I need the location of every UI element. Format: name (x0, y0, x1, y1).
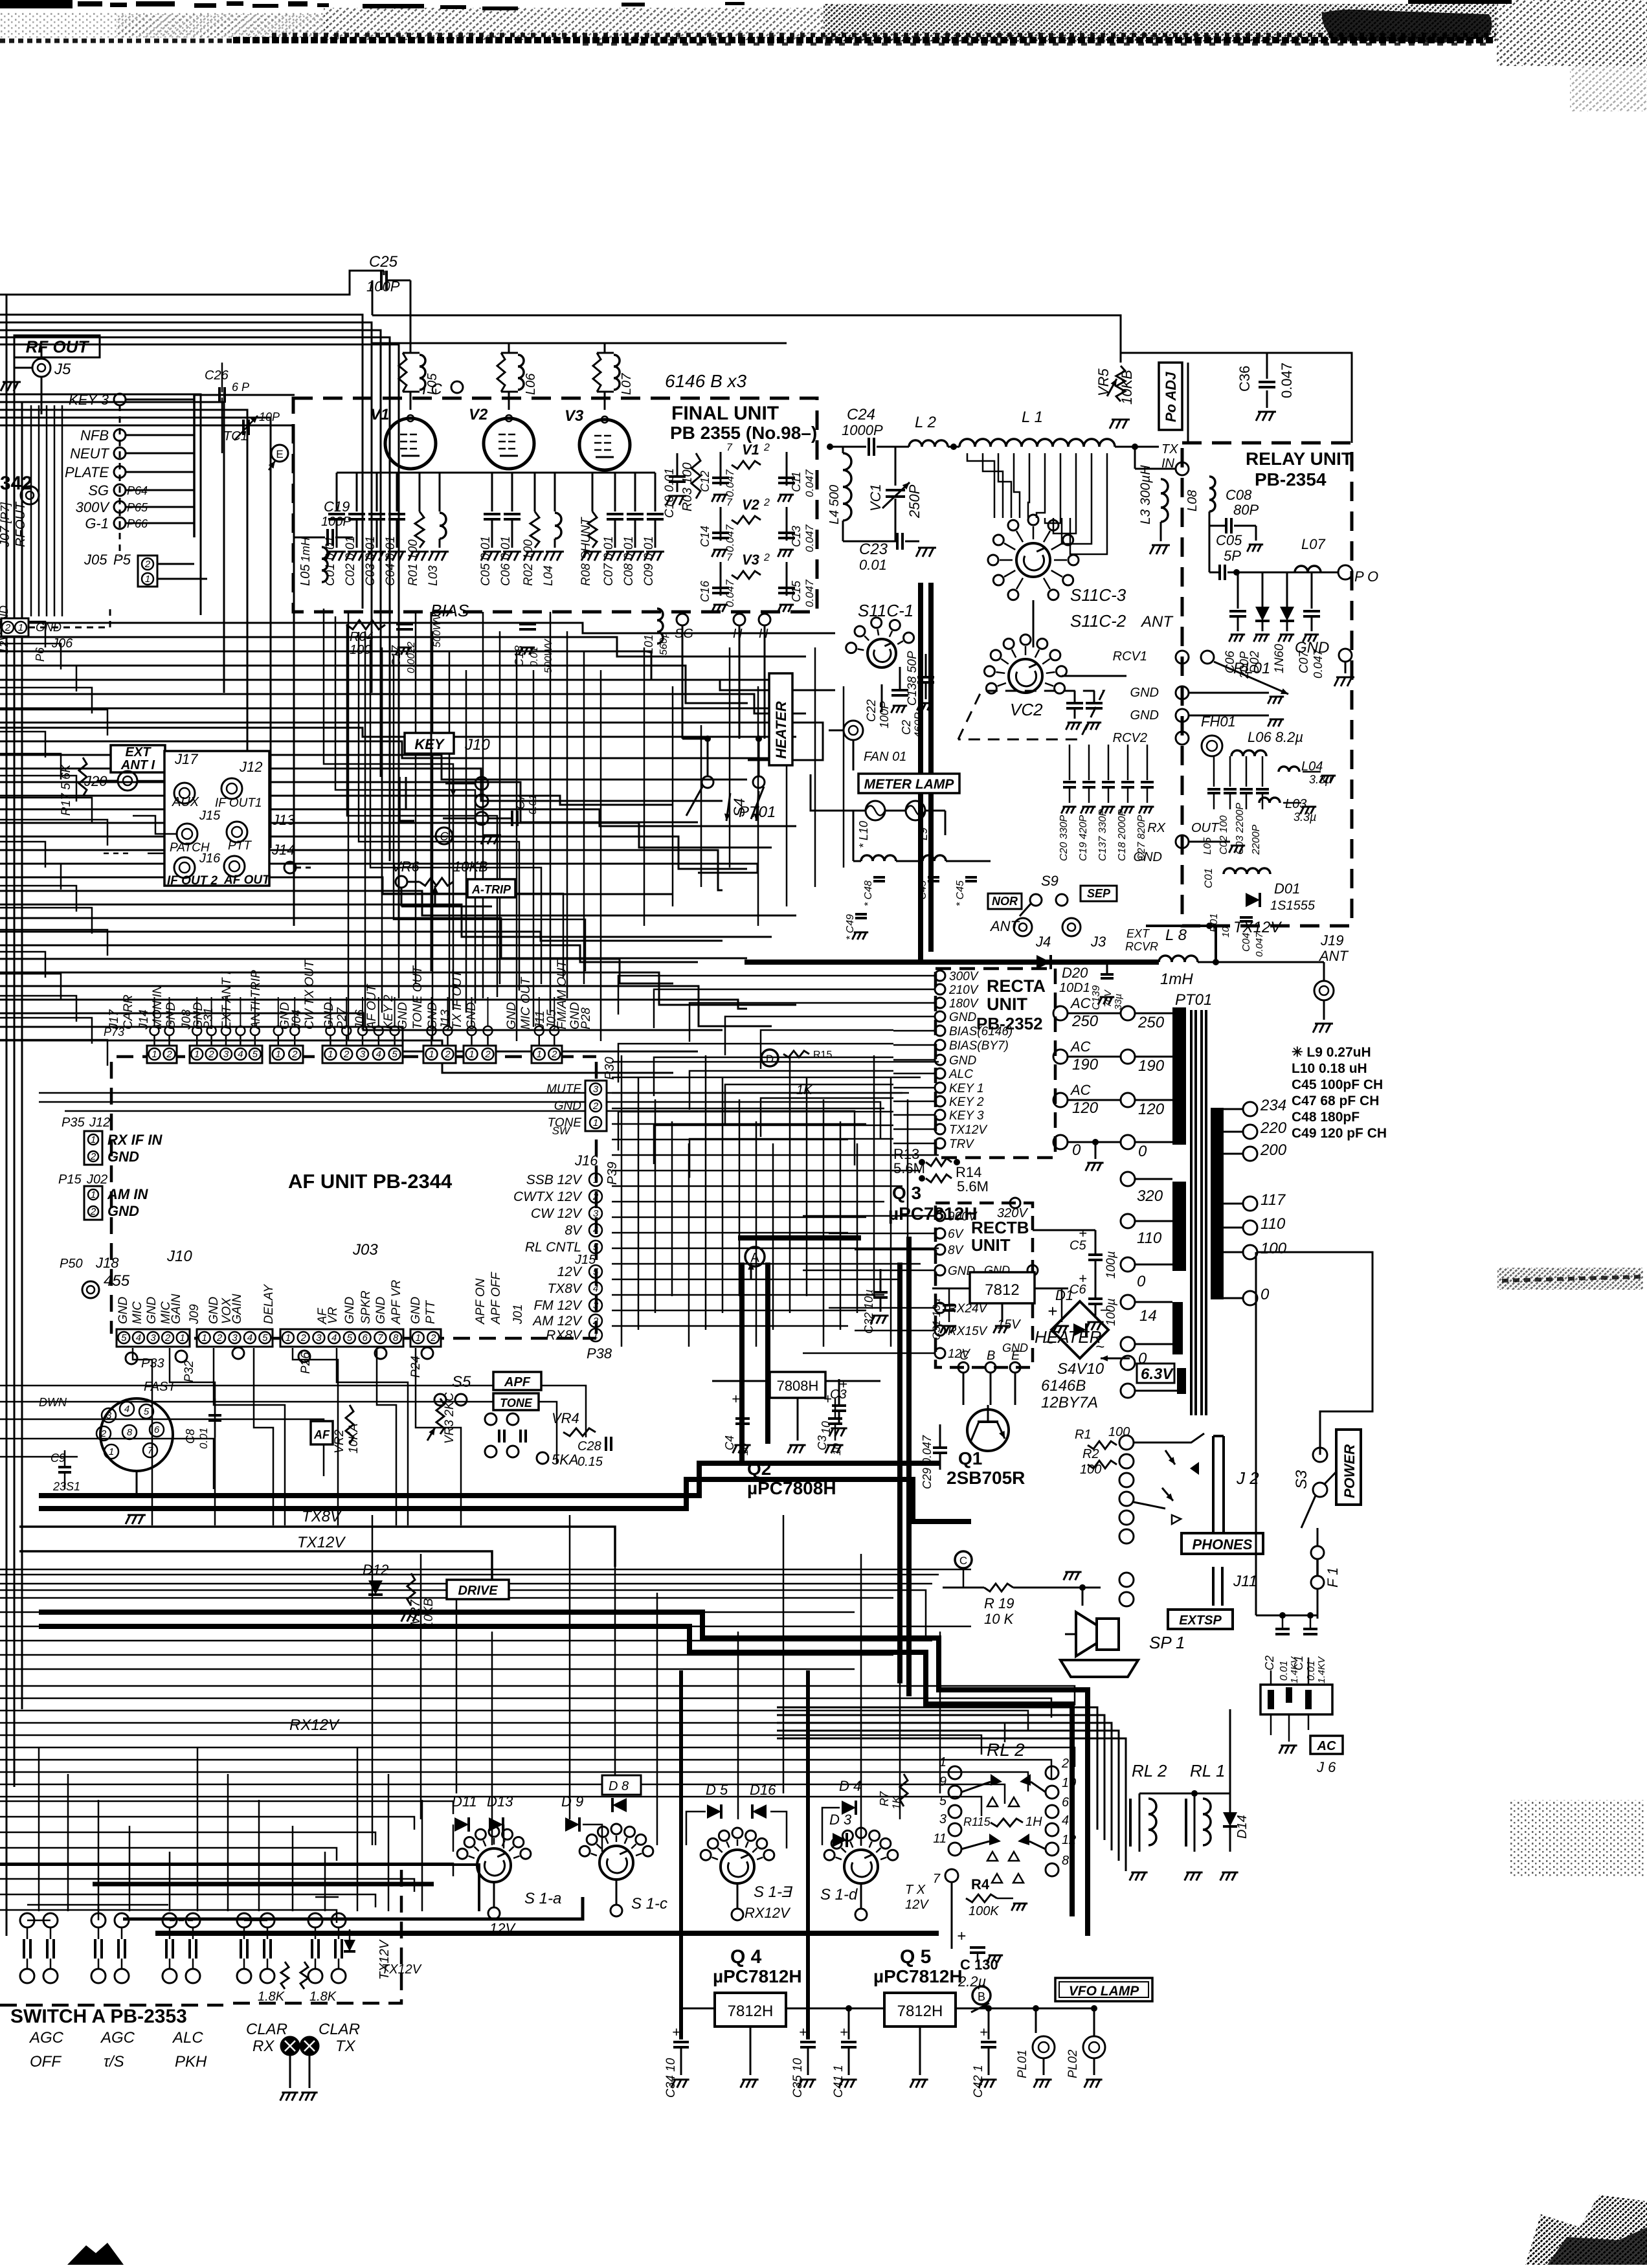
svg-text:8: 8 (1062, 1854, 1069, 1868)
svg-text:0.15: 0.15 (577, 1455, 603, 1469)
svg-text:R01 100: R01 100 (407, 539, 420, 586)
svg-text:6146 B x3: 6146 B x3 (665, 371, 747, 391)
svg-text:100: 100 (1080, 1463, 1101, 1477)
svg-text:0.047: 0.047 (724, 524, 736, 552)
svg-text:8V: 8V (565, 1223, 583, 1238)
svg-text:PB-2354: PB-2354 (1255, 469, 1327, 489)
svg-text:C31 10µ: C31 10µ (930, 1298, 943, 1340)
svg-text:GND: GND (145, 1297, 159, 1325)
svg-text:C02 100: C02 100 (1218, 815, 1229, 855)
svg-text:1: 1 (429, 1049, 434, 1060)
svg-text:J11: J11 (1233, 1573, 1257, 1590)
svg-text:6: 6 (1062, 1795, 1070, 1810)
svg-text:10KB: 10KB (453, 859, 488, 875)
svg-text:1: 1 (202, 1332, 207, 1343)
svg-text:VR5: VR5 (1095, 368, 1112, 396)
svg-text:SP 1: SP 1 (1149, 1633, 1185, 1652)
svg-text:AGC: AGC (100, 2029, 135, 2047)
svg-text:RL CNTL: RL CNTL (525, 1240, 581, 1255)
svg-text:5: 5 (593, 1242, 599, 1253)
svg-text:0.047: 0.047 (724, 579, 736, 607)
svg-text:IF OUT1: IF OUT1 (215, 796, 262, 810)
svg-text:J4: J4 (1035, 934, 1051, 950)
svg-text:P O: P O (1354, 568, 1378, 585)
svg-text:C25: C25 (369, 253, 398, 271)
svg-text:VC2: VC2 (1010, 700, 1043, 719)
svg-text:METER LAMP: METER LAMP (864, 777, 955, 792)
svg-text:4: 4 (593, 1283, 598, 1294)
svg-text:1: 1 (276, 1049, 281, 1060)
svg-text:C8: C8 (184, 1429, 197, 1444)
svg-text:S11C-1: S11C-1 (858, 601, 913, 620)
svg-text:5: 5 (939, 1794, 947, 1808)
svg-text:TX8V: TX8V (547, 1281, 583, 1296)
svg-text:7812H: 7812H (728, 2003, 774, 2020)
svg-text:8: 8 (393, 1332, 399, 1343)
svg-text:µPC7808H: µPC7808H (747, 1478, 836, 1498)
svg-text:J07: J07 (0, 526, 12, 548)
svg-text:C14: C14 (699, 526, 711, 547)
svg-text:5: 5 (262, 1332, 268, 1343)
svg-text:ALC: ALC (948, 1068, 973, 1081)
svg-text:5: 5 (347, 1332, 353, 1343)
svg-text:J12: J12 (239, 759, 262, 775)
svg-text:C48 180pF: C48 180pF (1292, 1110, 1360, 1125)
svg-text:ANT: ANT (1318, 948, 1349, 964)
svg-text:5: 5 (252, 1049, 258, 1060)
svg-text:D01: D01 (1274, 881, 1300, 897)
svg-text:SEP: SEP (1087, 887, 1111, 900)
svg-text:12BY7A: 12BY7A (1041, 1394, 1098, 1411)
svg-text:6V: 6V (948, 1228, 965, 1241)
svg-text:1: 1 (328, 1049, 333, 1060)
svg-text:P26: P26 (299, 1352, 313, 1374)
svg-text:V1: V1 (742, 442, 759, 458)
svg-text:6.3V: 6.3V (1141, 1365, 1174, 1383)
svg-text:V3: V3 (742, 552, 759, 568)
svg-text:2: 2 (216, 1332, 223, 1343)
svg-text:J04: J04 (290, 1009, 304, 1030)
svg-text:S5: S5 (452, 1373, 471, 1391)
svg-text:0.047: 0.047 (803, 579, 816, 607)
svg-text:J5: J5 (54, 361, 71, 378)
svg-text:Q 4: Q 4 (730, 1946, 762, 1968)
svg-text:0.01: 0.01 (859, 557, 887, 573)
svg-text:D 4: D 4 (839, 1778, 861, 1794)
svg-text:C3: C3 (816, 1435, 829, 1450)
svg-text:342: 342 (0, 473, 32, 494)
svg-text:L07: L07 (1301, 536, 1325, 552)
svg-text:0.0022: 0.0022 (406, 642, 417, 673)
svg-text:250P: 250P (906, 484, 923, 519)
svg-text:0.047: 0.047 (803, 469, 816, 497)
svg-text:P27: P27 (335, 1007, 349, 1029)
svg-text:300V: 300V (949, 970, 980, 983)
svg-text:CARR: CARR (122, 994, 135, 1029)
svg-text:AC: AC (1070, 1082, 1091, 1098)
svg-text:✳ L9 0.27uH: ✳ L9 0.27uH (1292, 1045, 1371, 1060)
svg-text:2: 2 (164, 1332, 171, 1343)
svg-text:* C48: * C48 (863, 881, 874, 906)
svg-text:S11C-3: S11C-3 (1070, 585, 1126, 605)
svg-text:C24: C24 (847, 406, 875, 423)
svg-text:C11: C11 (790, 471, 803, 492)
svg-text:7: 7 (148, 1445, 153, 1456)
svg-text:4: 4 (376, 1049, 381, 1060)
svg-text:RL 1: RL 1 (1190, 1761, 1225, 1780)
svg-text:OUT: OUT (1191, 821, 1220, 835)
svg-text:3: 3 (316, 1332, 322, 1343)
svg-text:VR4: VR4 (552, 1410, 579, 1426)
svg-text:C35 10: C35 10 (791, 2058, 805, 2098)
svg-text:RECTB: RECTB (971, 1218, 1029, 1237)
svg-text:L 8: L 8 (1165, 926, 1187, 944)
svg-text:Q1: Q1 (958, 1448, 982, 1468)
svg-text:C34 10: C34 10 (664, 2058, 678, 2098)
svg-text:GND: GND (465, 1002, 478, 1030)
svg-text:4: 4 (1062, 1813, 1069, 1828)
svg-text:D11: D11 (452, 1793, 477, 1810)
svg-text:1: 1 (194, 1049, 199, 1060)
svg-text:14: 14 (1139, 1307, 1157, 1325)
svg-text:E: E (276, 448, 283, 460)
svg-text:GND: GND (164, 1002, 178, 1030)
svg-text:5: 5 (121, 1332, 127, 1343)
svg-text:C49 120 pF CH: C49 120 pF CH (1292, 1126, 1387, 1141)
svg-text:C4: C4 (723, 1435, 736, 1450)
svg-text:BIAS(BY7): BIAS(BY7) (949, 1039, 1009, 1053)
svg-text:P66: P66 (127, 517, 148, 530)
svg-text:C20 330P: C20 330P (1059, 815, 1070, 861)
svg-text:2: 2 (551, 1049, 557, 1060)
svg-text:300V: 300V (76, 499, 111, 515)
svg-text:J02: J02 (86, 1173, 107, 1187)
svg-text:GND: GND (107, 1203, 139, 1219)
svg-text:GND: GND (1134, 850, 1162, 864)
svg-text:R2: R2 (1082, 1447, 1099, 1461)
svg-text:RCV2: RCV2 (1113, 731, 1147, 745)
svg-text:GND: GND (396, 1002, 410, 1030)
svg-text:TRV: TRV (949, 1138, 975, 1151)
svg-text:D: D (766, 1053, 774, 1065)
svg-text:C29 0.047: C29 0.047 (921, 1435, 934, 1489)
svg-text:5P: 5P (1224, 548, 1241, 564)
svg-text:1: 1 (286, 1332, 291, 1343)
svg-text:0: 0 (1072, 1141, 1081, 1159)
svg-text:GND: GND (409, 1297, 423, 1325)
svg-text:+: + (1048, 1301, 1057, 1321)
svg-text:7808H: 7808H (777, 1378, 819, 1394)
svg-text:D20: D20 (1062, 965, 1088, 981)
svg-text:AC: AC (1070, 995, 1091, 1011)
svg-text:J10: J10 (464, 736, 490, 754)
svg-text:C09 0.01: C09 0.01 (642, 536, 656, 586)
svg-text:1: 1 (593, 1330, 598, 1341)
svg-text:+: + (840, 2024, 848, 2040)
svg-text:10 K: 10 K (984, 1611, 1014, 1627)
svg-text:C26: C26 (205, 368, 229, 383)
svg-text:POWER: POWER (1341, 1444, 1358, 1498)
svg-text:L3 300µH: L3 300µH (1138, 465, 1153, 524)
svg-text:2: 2 (592, 1191, 599, 1202)
svg-text:8V: 8V (948, 1244, 965, 1257)
svg-text:TX12V: TX12V (297, 1534, 346, 1551)
svg-text:Q 5: Q 5 (900, 1946, 931, 1968)
svg-text:+: + (839, 1376, 847, 1392)
svg-text:C03 0.01: C03 0.01 (364, 536, 377, 586)
svg-text:ANT I: ANT I (120, 758, 155, 772)
svg-text:4: 4 (136, 1332, 141, 1343)
svg-text:DRIVE: DRIVE (458, 1584, 498, 1598)
svg-text:L05: L05 (298, 564, 313, 586)
svg-text:2: 2 (430, 1332, 436, 1343)
svg-text:23S1: 23S1 (52, 1480, 80, 1493)
svg-text:RCVR: RCVR (1125, 940, 1158, 953)
svg-text:L4 500: L4 500 (827, 485, 842, 524)
svg-text:210V: 210V (948, 983, 980, 997)
svg-text:GND: GND (554, 1099, 582, 1113)
svg-text:R04: R04 (350, 630, 374, 644)
svg-text:1N60: 1N60 (1273, 644, 1286, 673)
svg-text:L 2: L 2 (915, 414, 936, 431)
svg-text:P73: P73 (104, 1026, 124, 1039)
svg-text:VC1: VC1 (868, 484, 884, 511)
svg-text:τ/S: τ/S (104, 2053, 124, 2071)
svg-text:S4V10: S4V10 (1057, 1360, 1104, 1378)
svg-text:1S1555: 1S1555 (1270, 899, 1316, 913)
svg-text:GAIN: GAIN (170, 1294, 183, 1324)
svg-text:CW 12V: CW 12V (531, 1206, 583, 1221)
svg-text:1: 1 (18, 622, 23, 633)
svg-text:3: 3 (593, 1208, 599, 1219)
svg-text:L 1: L 1 (1022, 409, 1043, 426)
svg-text:L08: L08 (1185, 490, 1200, 511)
svg-text:TX: TX (335, 2038, 356, 2055)
svg-text:2: 2 (484, 1049, 491, 1060)
svg-text:1: 1 (593, 1174, 598, 1185)
svg-text:J09: J09 (188, 1304, 201, 1325)
svg-text:KEY 2: KEY 2 (382, 994, 396, 1029)
svg-text:VR: VR (326, 1307, 340, 1324)
svg-text:R4: R4 (971, 1876, 990, 1892)
svg-text:2: 2 (343, 1049, 350, 1060)
svg-text:P64: P64 (127, 484, 148, 497)
svg-text:1: 1 (416, 1332, 421, 1343)
svg-text:T X: T X (905, 1883, 926, 1897)
svg-text:J10: J10 (166, 1248, 192, 1265)
svg-text:GND: GND (374, 1297, 388, 1325)
svg-text:GND: GND (343, 1297, 357, 1325)
svg-text:SWITCH A PB-2353: SWITCH A PB-2353 (10, 2006, 187, 2027)
svg-text:RF: RF (14, 529, 28, 547)
svg-text:APF ON: APF ON (474, 1278, 487, 1325)
svg-text:S3: S3 (1293, 1470, 1310, 1489)
svg-text:P28: P28 (579, 1007, 593, 1029)
svg-text:FAN 01: FAN 01 (864, 750, 906, 764)
svg-text:C08: C08 (1226, 487, 1252, 503)
svg-text:GND: GND (322, 1002, 336, 1030)
svg-text:7: 7 (377, 1332, 383, 1343)
svg-text:3: 3 (232, 1332, 238, 1343)
svg-text:L06: L06 (524, 373, 538, 395)
svg-text:J18: J18 (95, 1255, 119, 1271)
svg-text:RX12V: RX12V (289, 1716, 340, 1734)
svg-text:GND: GND (505, 1002, 519, 1030)
svg-text:120: 120 (1138, 1101, 1165, 1118)
svg-text:234: 234 (1260, 1097, 1286, 1114)
svg-text:B: B (987, 1349, 995, 1363)
svg-text:0.047: 0.047 (1279, 363, 1295, 398)
svg-text:* L10: * L10 (857, 821, 870, 848)
svg-text:P6: P6 (34, 647, 47, 662)
svg-text:460P: 460P (912, 712, 924, 738)
svg-text:C2: C2 (900, 720, 913, 735)
svg-text:FM 12V: FM 12V (533, 1298, 583, 1313)
svg-text:C: C (440, 830, 449, 843)
svg-text:P65: P65 (127, 501, 148, 514)
svg-text:TX: TX (1161, 442, 1178, 456)
svg-text:0.047: 0.047 (724, 469, 736, 497)
svg-text:110: 110 (1137, 1229, 1162, 1247)
svg-text:10KB: 10KB (1119, 370, 1135, 405)
svg-text:RL01: RL01 (1233, 660, 1270, 677)
svg-text:1mH: 1mH (1160, 971, 1193, 988)
svg-text:NFB: NFB (80, 427, 109, 443)
svg-text:P30: P30 (603, 1057, 617, 1080)
svg-text:4: 4 (238, 1049, 243, 1060)
svg-text:R7: R7 (878, 1791, 891, 1806)
svg-text:VR6: VR6 (392, 859, 420, 875)
svg-text:1: 1 (180, 1332, 185, 1343)
svg-text:S9: S9 (1041, 873, 1059, 889)
svg-text:DELAY: DELAY (262, 1284, 276, 1324)
svg-text:APF: APF (504, 1375, 531, 1389)
svg-text:P35: P35 (62, 1116, 85, 1130)
svg-text:D12: D12 (363, 1562, 388, 1578)
svg-text:RX: RX (1147, 821, 1165, 835)
svg-text:S11C-2: S11C-2 (1070, 611, 1126, 631)
svg-text:C16: C16 (699, 580, 711, 602)
svg-text:2: 2 (208, 1049, 214, 1060)
svg-text:2: 2 (444, 1049, 451, 1060)
svg-text:100P: 100P (878, 701, 891, 728)
svg-text:TONE OUT: TONE OUT (411, 965, 425, 1029)
svg-text:C45 100pF CH: C45 100pF CH (1292, 1077, 1383, 1092)
svg-text:OFF: OFF (30, 2053, 62, 2071)
svg-text:+: + (672, 2024, 680, 2040)
svg-text:2: 2 (166, 1049, 172, 1060)
svg-text:1: 1 (109, 1446, 114, 1457)
svg-text:11: 11 (933, 1832, 947, 1846)
svg-text:100µ: 100µ (1104, 1298, 1118, 1326)
svg-text:C08 0.01: C08 0.01 (622, 536, 636, 586)
svg-text:P50: P50 (60, 1257, 83, 1271)
svg-text:0: 0 (1137, 1273, 1146, 1290)
svg-text:100P: 100P (321, 515, 352, 529)
svg-text:5: 5 (593, 1266, 599, 1277)
svg-text:6: 6 (362, 1332, 368, 1343)
svg-text:RECTA: RECTA (987, 976, 1046, 996)
svg-text:1H: 1H (1025, 1815, 1042, 1829)
svg-text:2SB705R: 2SB705R (947, 1468, 1025, 1488)
svg-text:µPC7812H: µPC7812H (713, 1966, 802, 1986)
svg-text:1K: 1K (796, 1083, 813, 1097)
svg-text:R115: R115 (963, 1815, 991, 1828)
svg-text:7: 7 (726, 552, 733, 563)
svg-text:455: 455 (104, 1272, 130, 1290)
svg-text:H: H (733, 627, 743, 641)
svg-text:0.01: 0.01 (529, 647, 540, 667)
svg-text:1.8K: 1.8K (309, 1990, 337, 2004)
svg-text:560µ: 560µ (658, 632, 669, 655)
svg-text:C12: C12 (699, 471, 711, 492)
svg-text:250: 250 (1137, 1014, 1165, 1031)
svg-text:HEATER: HEATER (773, 701, 789, 759)
svg-text:1.4KV: 1.4KV (1316, 1656, 1327, 1683)
svg-text:4: 4 (331, 1332, 337, 1343)
svg-text:L05: L05 (1202, 837, 1213, 855)
svg-text:C05: C05 (1216, 532, 1242, 548)
svg-text:3: 3 (939, 1812, 947, 1826)
svg-text:0.01: 0.01 (1306, 1661, 1317, 1681)
svg-text:SPKR: SPKR (359, 1290, 373, 1324)
svg-text:0: 0 (1138, 1143, 1147, 1160)
svg-text:100: 100 (1108, 1425, 1130, 1439)
svg-text:L04: L04 (542, 565, 555, 586)
svg-text:R15: R15 (813, 1050, 832, 1061)
svg-text:2: 2 (5, 622, 11, 633)
svg-text:PLATE: PLATE (65, 464, 109, 480)
svg-text:+: + (732, 1391, 740, 1407)
svg-text:J12: J12 (89, 1116, 110, 1130)
svg-text:V2: V2 (469, 406, 488, 423)
svg-text:C138 50P: C138 50P (906, 651, 919, 706)
svg-text:V1: V1 (370, 406, 389, 423)
svg-text:PTT: PTT (424, 1300, 438, 1324)
svg-text:F 1: F 1 (1325, 1567, 1341, 1588)
svg-text:SW: SW (552, 1125, 571, 1137)
svg-text:FM/AM OUT: FM/AM OUT (555, 960, 569, 1029)
svg-text:GND: GND (117, 1297, 130, 1325)
svg-text:4: 4 (124, 1404, 129, 1415)
svg-text:5: 5 (392, 1049, 398, 1060)
svg-text:1: 1 (145, 574, 150, 585)
svg-text:J3: J3 (1090, 934, 1106, 950)
svg-text:PT01: PT01 (1175, 991, 1212, 1009)
svg-text:3: 3 (106, 1410, 112, 1421)
svg-text:C1: C1 (1292, 1656, 1305, 1670)
svg-text:PL02: PL02 (1066, 2049, 1080, 2078)
svg-text:AM 12V: AM 12V (532, 1314, 583, 1329)
svg-text:MIC: MIC (131, 1301, 144, 1324)
svg-text:2: 2 (592, 1316, 599, 1327)
svg-text:2: 2 (1061, 1757, 1069, 1771)
svg-text:Q2: Q2 (747, 1459, 771, 1479)
svg-text:D14: D14 (1235, 1815, 1249, 1839)
svg-text:RX8V: RX8V (546, 1328, 583, 1343)
svg-text:C42 1: C42 1 (972, 2065, 985, 2098)
svg-text:7: 7 (726, 442, 733, 453)
svg-text:10: 10 (1220, 926, 1231, 938)
svg-text:1000P: 1000P (842, 422, 883, 438)
svg-text:12: 12 (1062, 1833, 1076, 1847)
svg-text:2200P: 2200P (1251, 824, 1262, 855)
svg-text:PB 2355 (No.98–): PB 2355 (No.98–) (670, 423, 817, 443)
svg-text:GND: GND (949, 1054, 977, 1068)
svg-text:1: 1 (91, 1189, 96, 1200)
svg-text:C: C (959, 1349, 969, 1363)
svg-text:190: 190 (1138, 1057, 1165, 1075)
